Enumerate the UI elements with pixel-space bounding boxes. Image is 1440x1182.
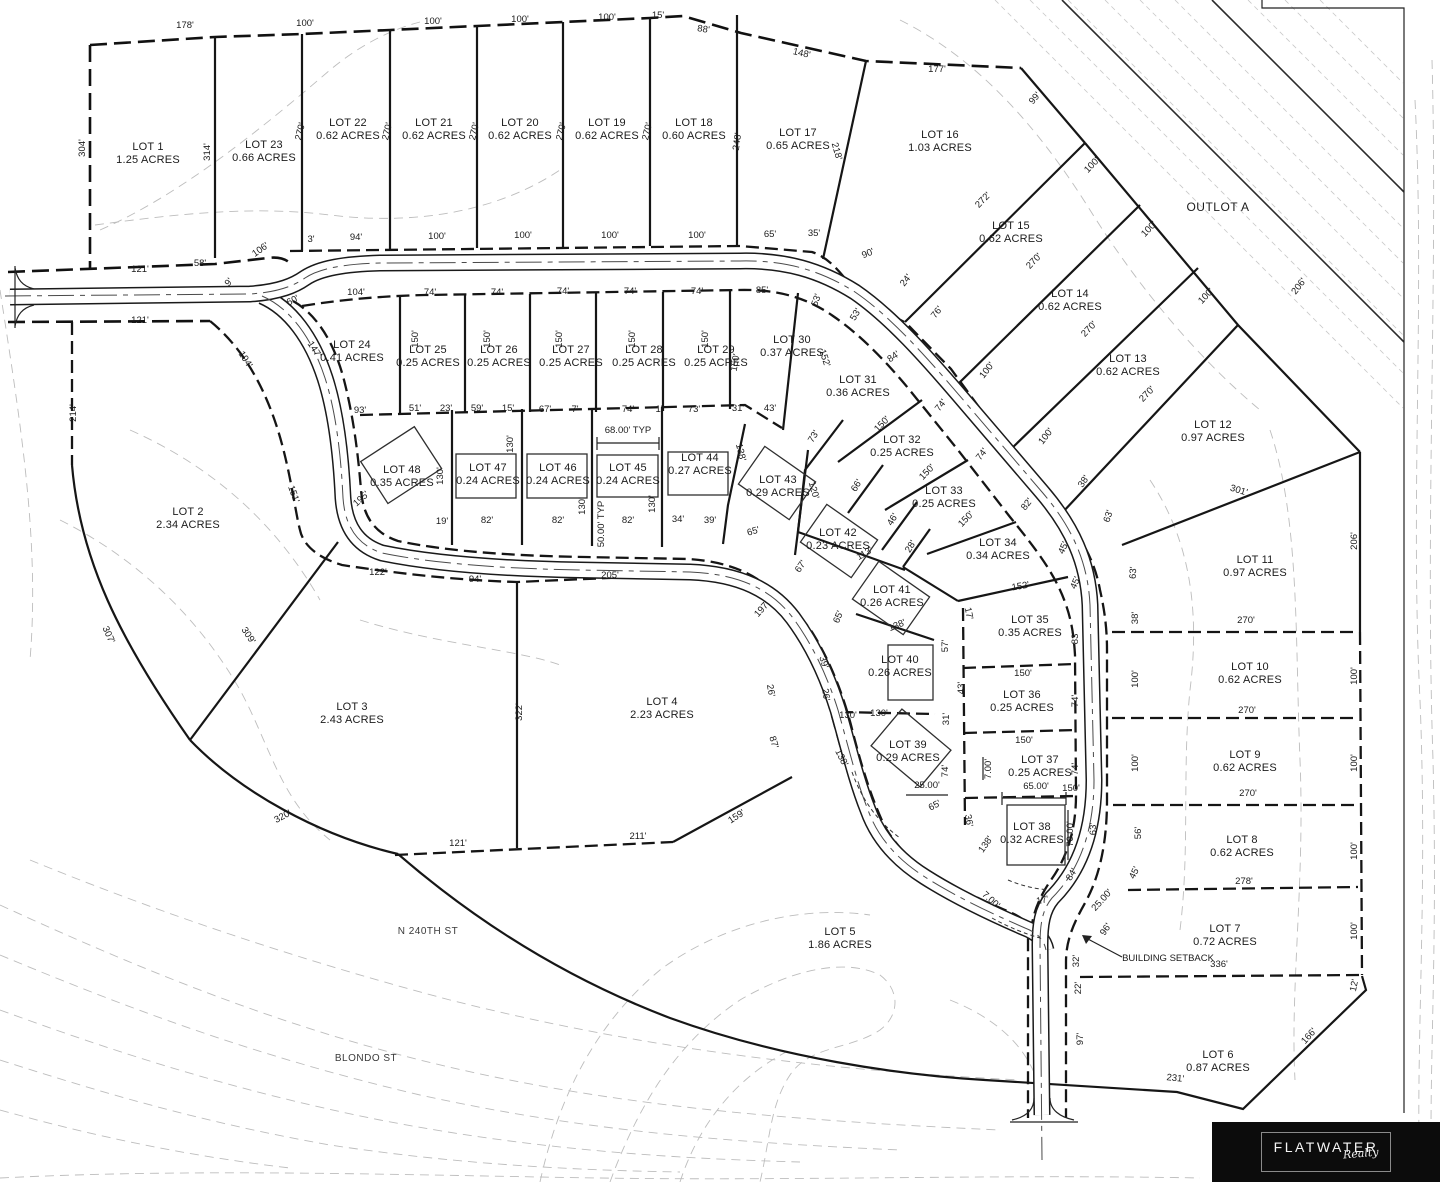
plat-map-page: LOT 11.25 ACRESLOT 22.34 ACRESLOT 32.43 … (0, 0, 1440, 1182)
dim-label-15: 270' (554, 121, 569, 141)
dim-label-43: 53' (809, 292, 824, 308)
dim-label-130: 152' (1011, 580, 1030, 594)
lot-24-acres: 0.41 ACRES (320, 352, 384, 364)
lot-26-acres: 0.25 ACRES (467, 357, 531, 369)
lot-9-name: LOT 9 (1229, 749, 1260, 761)
dim-label-93: 28' (903, 538, 919, 554)
dim-label-29: 65' (764, 229, 777, 240)
dim-label-149: 63' (1088, 823, 1099, 836)
dim-label-91: 46' (885, 511, 901, 527)
outlot-a-label: OUTLOT A (1186, 200, 1249, 214)
dim-label-109: 65' (831, 609, 846, 625)
lot-48-acres: 0.35 ACRES (370, 477, 434, 489)
dim-label-142: 74' (1070, 695, 1081, 708)
dim-label-156: 32' (1071, 955, 1082, 968)
logo-box: FLATWATER Realty (1261, 1132, 1392, 1172)
lot-14-acres: 0.62 ACRES (1038, 301, 1102, 313)
dim-label-155: 138' (976, 834, 995, 855)
dim-label-85: 31' (732, 403, 745, 414)
dim-label-163: 270' (1238, 705, 1256, 716)
dim-label-105: 34' (672, 514, 685, 525)
dim-label-17: 248' (731, 132, 744, 151)
lot-3-name: LOT 3 (336, 701, 367, 713)
dim-label-79: 15' (502, 403, 515, 414)
dim-label-110: 138' (887, 617, 908, 634)
dim-label-55: 152' (816, 348, 832, 368)
lot-19-acres: 0.62 ACRES (575, 130, 639, 142)
dim-label-104: 82' (622, 515, 635, 526)
dim-label-27: 100' (601, 230, 619, 241)
lot-41-name: LOT 41 (873, 584, 911, 596)
dim-label-138: 25.00' (914, 780, 940, 791)
lot-35-name: LOT 35 (1011, 614, 1049, 626)
lot-16-name: LOT 16 (921, 129, 959, 141)
dim-label-137: 130' (870, 708, 888, 719)
dim-label-66: 38' (1130, 612, 1141, 625)
dim-label-134: 31' (941, 713, 952, 726)
lot-17-acres: 0.65 ACRES (766, 140, 830, 152)
lot-14-name: LOT 14 (1051, 288, 1089, 300)
dim-label-20: 58' (194, 258, 207, 269)
dim-label-59: 100' (1036, 426, 1056, 447)
50-00-typ-label: 50.00' TYP (596, 501, 607, 548)
lot-32-acres: 0.25 ACRES (870, 447, 934, 459)
lot-33-name: LOT 33 (925, 485, 963, 497)
lot-44-acres: 0.27 ACRES (668, 465, 732, 477)
dim-label-135: 74' (940, 765, 951, 778)
lot-25-acres: 0.25 ACRES (396, 357, 460, 369)
dim-label-83: 1' (655, 404, 662, 415)
lot-35-acres: 0.35 ACRES (998, 627, 1062, 639)
lot-43-name: LOT 43 (759, 474, 797, 486)
lot-46-name: LOT 46 (539, 462, 577, 474)
dim-label-32: 121' (131, 315, 149, 326)
dim-label-96: 138' (733, 442, 748, 462)
dim-label-68: 150' (410, 330, 421, 348)
dim-label-33: 214' (68, 404, 79, 422)
dim-label-47: 272' (973, 190, 993, 210)
dim-label-8: 177' (928, 64, 946, 75)
lot-4-name: LOT 4 (646, 696, 677, 708)
dim-label-38: 74' (491, 287, 504, 298)
dim-label-5: 15' (652, 10, 665, 21)
lot-13-name: LOT 13 (1109, 353, 1147, 365)
n-240th-st-label: N 240TH ST (398, 926, 459, 937)
lot-13-acres: 0.62 ACRES (1096, 366, 1160, 378)
flatwater-realty-logo: FLATWATER Realty (1212, 1122, 1440, 1182)
dim-label-82: 74' (622, 404, 635, 415)
lot-8-acres: 0.62 ACRES (1210, 847, 1274, 859)
dim-label-36: 104' (347, 287, 365, 298)
dim-label-148: 70.00' (1065, 821, 1076, 847)
lot-7-acres: 0.72 ACRES (1193, 936, 1257, 948)
dim-label-28: 100' (688, 230, 706, 241)
dim-label-62: 82' (1019, 496, 1035, 513)
dim-label-120: 322' (514, 703, 525, 721)
dim-label-11: 314' (202, 143, 213, 161)
lot-20-name: LOT 20 (501, 117, 539, 129)
lot-45-name: LOT 45 (609, 462, 647, 474)
dim-label-114: 122' (369, 567, 387, 578)
lot-27-acres: 0.25 ACRES (539, 357, 603, 369)
lot-22-name: LOT 22 (329, 117, 367, 129)
dim-label-98: 130' (505, 435, 516, 453)
right-of-way-lines (210, 246, 1107, 1118)
lot-38-name: LOT 38 (1013, 821, 1051, 833)
dim-label-158: 97' (1075, 1033, 1086, 1046)
dim-label-0: 178' (176, 20, 194, 31)
lot-18-acres: 0.60 ACRES (662, 130, 726, 142)
lot-39-name: LOT 39 (889, 739, 927, 751)
lot-21-acres: 0.62 ACRES (402, 130, 466, 142)
lot-46-acres: 0.24 ACRES (526, 475, 590, 487)
lot-21-name: LOT 21 (415, 117, 453, 129)
dim-label-161: 270' (1237, 615, 1255, 626)
lot-44-name: LOT 44 (681, 452, 719, 464)
dim-label-103: 82' (552, 515, 565, 526)
lot-32-name: LOT 32 (883, 434, 921, 446)
dim-label-169: 45' (1127, 865, 1142, 881)
dim-label-144: 74' (1070, 763, 1081, 776)
dim-label-4: 100' (598, 12, 616, 23)
lot-43-acres: 0.29 ACRES (746, 487, 810, 499)
dim-label-153: 96' (1098, 921, 1114, 938)
lot-18-name: LOT 18 (675, 117, 713, 129)
lot-1-name: LOT 1 (132, 141, 163, 153)
dim-label-51: 270' (1079, 319, 1099, 339)
lot-28-acres: 0.25 ACRES (612, 357, 676, 369)
dim-label-1: 100' (296, 18, 314, 29)
dim-label-24: 94' (350, 232, 363, 243)
lot-6-name: LOT 6 (1202, 1049, 1233, 1061)
dim-label-174: 12' (1348, 978, 1361, 993)
dim-label-63: 63' (1101, 508, 1115, 523)
lot-3-acres: 2.43 ACRES (320, 714, 384, 726)
dim-label-71: 150' (627, 330, 638, 348)
dim-label-136: 36' (962, 814, 975, 828)
lot-5-name: LOT 5 (824, 926, 855, 938)
dim-label-72: 150' (700, 330, 711, 348)
dim-label-86: 43' (764, 403, 777, 414)
building-setback-label: BUILDING SETBACK (1122, 953, 1215, 964)
lot-40-acres: 0.26 ACRES (868, 667, 932, 679)
lot-36-acres: 0.25 ACRES (990, 702, 1054, 714)
dim-label-160: 206' (1349, 532, 1360, 550)
dim-label-6: 88' (696, 23, 710, 36)
dim-label-159: 301' (1229, 483, 1249, 499)
dim-label-60: 74' (974, 446, 990, 463)
lot-12-name: LOT 12 (1194, 419, 1232, 431)
dim-label-48: 100' (1082, 155, 1102, 175)
lot-45-acres: 0.24 ACRES (596, 475, 660, 487)
dim-label-53: 270' (1137, 384, 1157, 404)
lot-38-acres: 0.32 ACRES (1000, 834, 1064, 846)
dim-label-99: 130' (577, 497, 588, 515)
lot-31-acres: 0.36 ACRES (826, 387, 890, 399)
dim-label-176: 231' (1166, 1072, 1185, 1085)
lot-2-acres: 2.34 ACRES (156, 519, 220, 531)
dim-label-128: 130' (839, 710, 857, 721)
dim-label-41: 74' (691, 286, 704, 297)
dim-label-67: 63' (1128, 566, 1140, 579)
dim-label-170: 100' (1349, 842, 1360, 860)
lot-11-acres: 0.97 ACRES (1223, 567, 1287, 579)
dim-label-42: 85' (756, 285, 769, 296)
dim-label-78: 59' (471, 403, 484, 414)
lot-19-name: LOT 19 (588, 117, 626, 129)
lot-6-acres: 0.87 ACRES (1186, 1062, 1250, 1074)
dim-label-172: 100' (1349, 922, 1360, 940)
lot-36-name: LOT 36 (1003, 689, 1041, 701)
dim-label-122: 211' (630, 831, 647, 842)
dim-label-97: 130' (435, 467, 446, 485)
dim-label-54: 206' (1289, 276, 1309, 297)
lot-41-acres: 0.26 ACRES (860, 597, 924, 609)
dim-label-52: 100' (1196, 286, 1216, 306)
dim-label-152: 25.00' (1089, 887, 1114, 914)
lot-10-acres: 0.62 ACRES (1218, 674, 1282, 686)
dim-label-23: 3' (307, 234, 314, 245)
dim-label-146: 65.00' (1023, 781, 1049, 792)
dim-label-80: 67' (539, 404, 552, 415)
dim-label-76: 51' (409, 403, 422, 414)
dim-label-18: 218' (829, 141, 844, 161)
lot-5-acres: 1.86 ACRES (808, 939, 872, 951)
lot-23-name: LOT 23 (245, 139, 283, 151)
lot-24-name: LOT 24 (333, 339, 371, 351)
dim-label-50: 100' (1139, 219, 1159, 239)
dim-label-175: 166' (1299, 1026, 1319, 1047)
dim-label-75: 93' (354, 405, 367, 416)
dim-label-102: 82' (481, 515, 494, 526)
dim-label-13: 270' (380, 121, 395, 141)
dim-label-49: 270' (1024, 251, 1044, 271)
dim-label-141: 150' (1014, 668, 1032, 679)
lot-10-name: LOT 10 (1231, 661, 1269, 673)
dim-label-145: 150' (1062, 783, 1080, 794)
lot-15-name: LOT 15 (992, 220, 1030, 232)
lot-33-acres: 0.25 ACRES (912, 498, 976, 510)
lot-22-acres: 0.62 ACRES (316, 130, 380, 142)
dim-label-45: 24' (898, 272, 914, 289)
dim-label-30: 35' (808, 228, 821, 239)
lot-2-name: LOT 2 (172, 506, 203, 518)
dim-label-37: 74' (424, 287, 437, 298)
dim-label-117: 309' (239, 625, 258, 646)
lot-11-name: LOT 11 (1237, 554, 1274, 566)
lot-34-acres: 0.34 ACRES (966, 550, 1030, 562)
lot-23-acres: 0.66 ACRES (232, 152, 296, 164)
lot-37-acres: 0.25 ACRES (1008, 767, 1072, 779)
dim-label-143: 150' (1015, 735, 1033, 746)
lot-47-name: LOT 47 (469, 462, 507, 474)
lot-9-acres: 0.62 ACRES (1213, 762, 1277, 774)
dim-label-46: 76' (929, 304, 945, 321)
dim-label-44: 53' (848, 306, 864, 322)
dim-label-108: 67' (793, 558, 809, 575)
dim-label-139: 65' (927, 798, 943, 814)
dim-label-113: 151' (285, 484, 301, 505)
lot-39-acres: 0.29 ACRES (876, 752, 940, 764)
dim-label-107: 65' (746, 525, 761, 539)
dim-label-133: 43' (956, 682, 967, 695)
dim-label-101: 19' (436, 516, 449, 527)
dim-label-106: 39' (704, 515, 717, 526)
lot-40-name: LOT 40 (881, 654, 919, 666)
dim-label-165: 100' (1130, 754, 1141, 772)
lot-20-acres: 0.62 ACRES (488, 130, 552, 142)
dim-label-167: 100' (1349, 754, 1360, 772)
dim-label-10: 304' (77, 139, 88, 157)
dim-label-77: 23' (440, 403, 453, 414)
plat-map-svg: LOT 11.25 ACRESLOT 22.34 ACRESLOT 32.43 … (0, 0, 1440, 1182)
lot-15-acres: 0.62 ACRES (979, 233, 1043, 245)
dim-label-166: 270' (1239, 788, 1257, 799)
dim-label-25: 100' (428, 231, 446, 242)
68-00-typ-label: 68.00' TYP (605, 425, 652, 436)
dim-label-56: 84' (885, 349, 902, 365)
dim-label-3: 100' (511, 14, 529, 25)
dim-label-92: 150' (956, 509, 976, 529)
dim-label-87: 73' (806, 428, 822, 444)
lot-17-name: LOT 17 (779, 127, 817, 139)
dim-label-164: 100' (1130, 670, 1141, 688)
dim-label-100: 130' (647, 495, 658, 513)
lot-47-acres: 0.24 ACRES (456, 475, 520, 487)
dim-label-70: 150' (554, 330, 565, 348)
lot-16-acres: 1.03 ACRES (908, 142, 972, 154)
dim-label-88: 150' (872, 414, 892, 434)
dim-label-115: 94' (469, 574, 482, 585)
dim-label-124: 26' (764, 684, 777, 698)
dim-label-121: 121' (449, 838, 467, 849)
dim-label-116: 205' (601, 570, 619, 581)
dim-label-34: 194' (236, 349, 255, 370)
dim-label-73: 150' (729, 353, 743, 372)
dim-label-127: 26' (819, 688, 832, 702)
dim-label-39: 74' (557, 286, 570, 297)
dim-label-19: 121' (131, 264, 149, 275)
dim-label-31: 90' (860, 246, 876, 261)
lot-7-name: LOT 7 (1209, 923, 1240, 935)
dim-label-125: 87' (766, 735, 780, 750)
lot-48-name: LOT 48 (383, 464, 421, 476)
dim-label-132: 57' (940, 640, 951, 653)
blondo-st-label: BLONDO ST (335, 1053, 397, 1064)
lot-lines-dashed (360, 405, 1362, 977)
lot-31-name: LOT 31 (839, 374, 877, 386)
dim-label-26: 100' (514, 230, 532, 241)
lot-42-name: LOT 42 (819, 527, 857, 539)
lot-12-acres: 0.97 ACRES (1181, 432, 1245, 444)
dim-label-16: 270' (640, 121, 655, 141)
dim-label-162: 100' (1349, 667, 1360, 685)
dim-label-171: 278' (1235, 876, 1253, 887)
dim-label-22: 106' (250, 240, 271, 259)
dim-label-112: 195' (351, 489, 372, 509)
dimension-labels-layer: 178'100'100'100'100'15'88'148'177'99'304… (68, 10, 1361, 1085)
dim-label-2: 100' (424, 16, 442, 27)
lot-30-acres: 0.37 ACRES (760, 347, 824, 359)
lot-30-name: LOT 30 (773, 334, 811, 346)
lot-37-name: LOT 37 (1021, 754, 1059, 766)
roads (5, 261, 1094, 1160)
lot-8-name: LOT 8 (1226, 834, 1257, 846)
dim-label-168: 56' (1133, 827, 1144, 840)
lot-34-name: LOT 34 (979, 537, 1017, 549)
dim-label-69: 150' (482, 330, 493, 348)
dim-label-58: 74' (933, 397, 949, 414)
lot-4-acres: 2.23 ACRES (630, 709, 694, 721)
dim-label-118: 307' (100, 625, 117, 646)
dim-label-84: 73' (688, 404, 701, 415)
dim-label-147: 7.00' (983, 759, 994, 779)
dim-label-14: 270' (467, 121, 482, 141)
dim-label-157: 22' (1073, 982, 1084, 995)
dim-label-12: 270' (293, 121, 308, 141)
dim-label-81: 7' (571, 404, 578, 415)
dim-label-119: 320' (272, 808, 293, 826)
dim-label-40: 74' (624, 286, 637, 297)
dim-label-140: 83' (1070, 632, 1081, 645)
lot-1-acres: 1.25 ACRES (116, 154, 180, 166)
dim-label-61: 38' (1076, 473, 1092, 490)
